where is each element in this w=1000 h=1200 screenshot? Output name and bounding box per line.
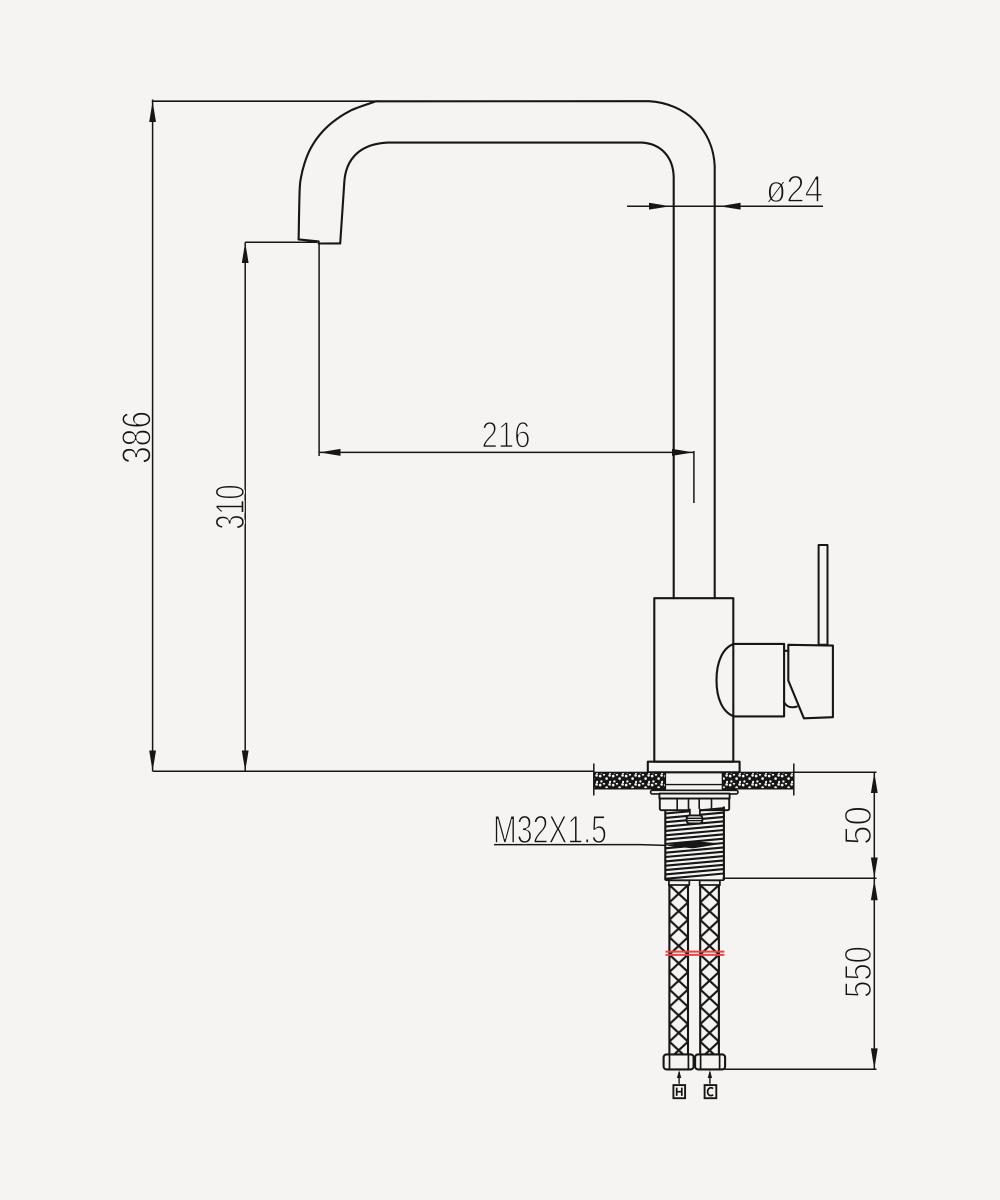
svg-text:310: 310 — [207, 485, 253, 530]
svg-text:386: 386 — [114, 411, 160, 464]
svg-text:550: 550 — [838, 946, 880, 998]
svg-text:ø24: ø24 — [766, 169, 823, 211]
svg-text:216: 216 — [482, 415, 531, 456]
svg-text:50: 50 — [838, 806, 880, 845]
svg-text:M32X1.5: M32X1.5 — [493, 808, 607, 852]
